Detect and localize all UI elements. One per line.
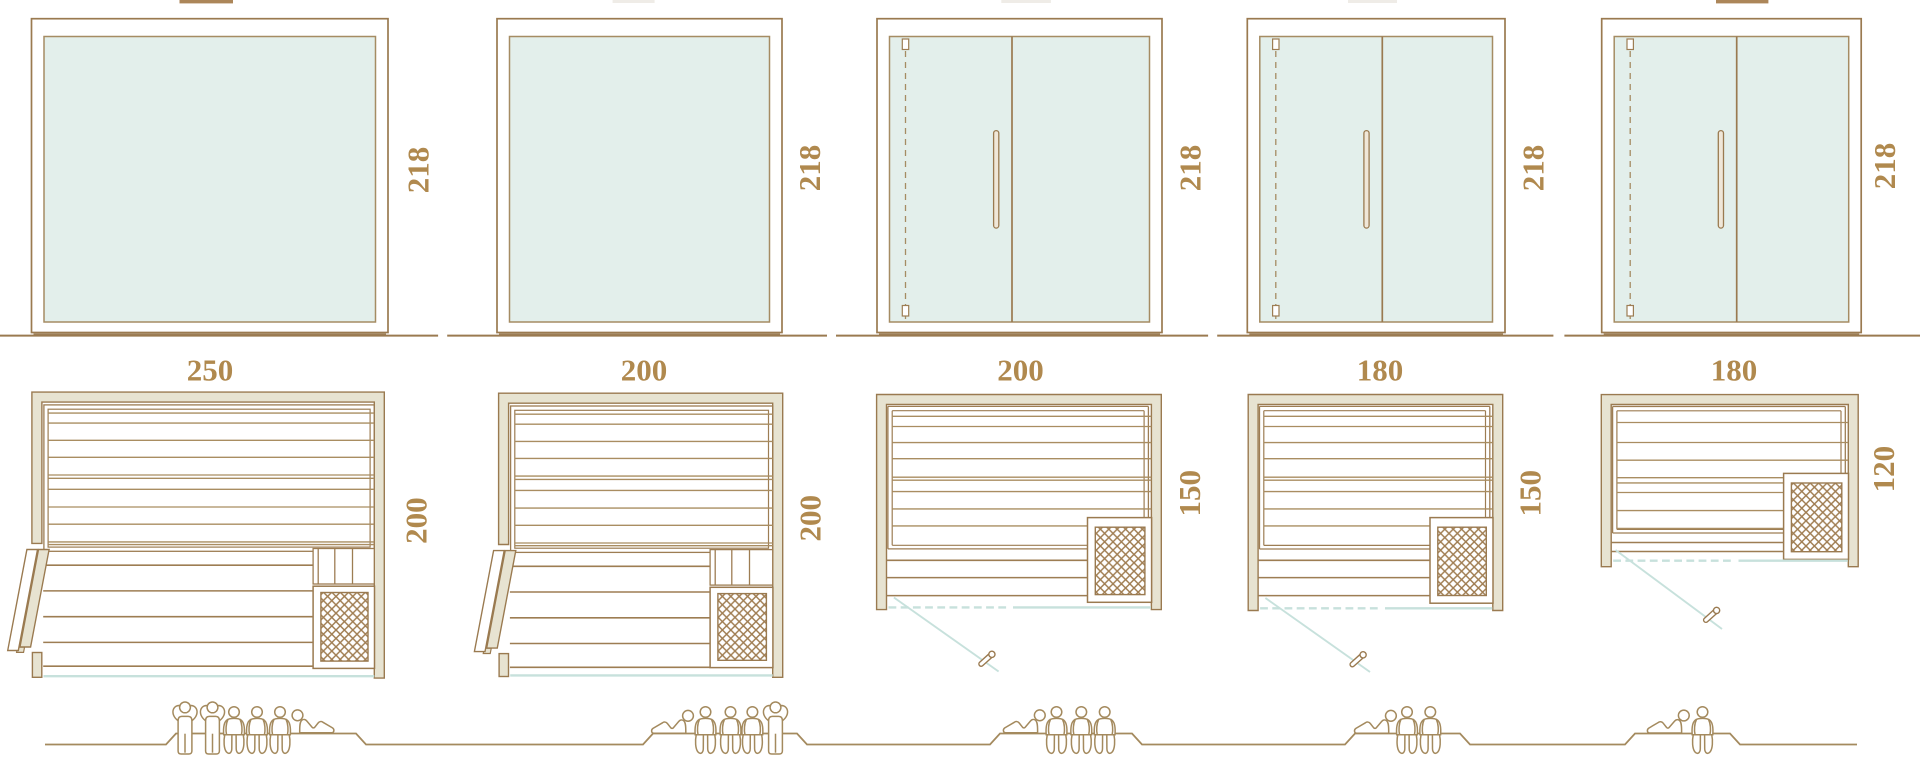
svg-text:180: 180 [1357,353,1404,388]
svg-text:218: 218 [1867,143,1902,190]
svg-text:218: 218 [400,147,435,194]
svg-text:120: 120 [1866,446,1901,493]
svg-text:200: 200 [997,353,1044,388]
svg-text:150: 150 [1513,470,1548,517]
svg-text:200: 200 [621,353,668,388]
svg-text:218: 218 [792,145,827,192]
svg-text:250: 250 [187,353,234,388]
svg-text:200: 200 [793,495,828,542]
svg-text:218: 218 [1172,145,1207,192]
svg-text:200: 200 [398,497,433,544]
svg-text:218: 218 [1516,145,1551,192]
svg-text:150: 150 [1172,470,1207,517]
svg-text:180: 180 [1711,353,1758,388]
